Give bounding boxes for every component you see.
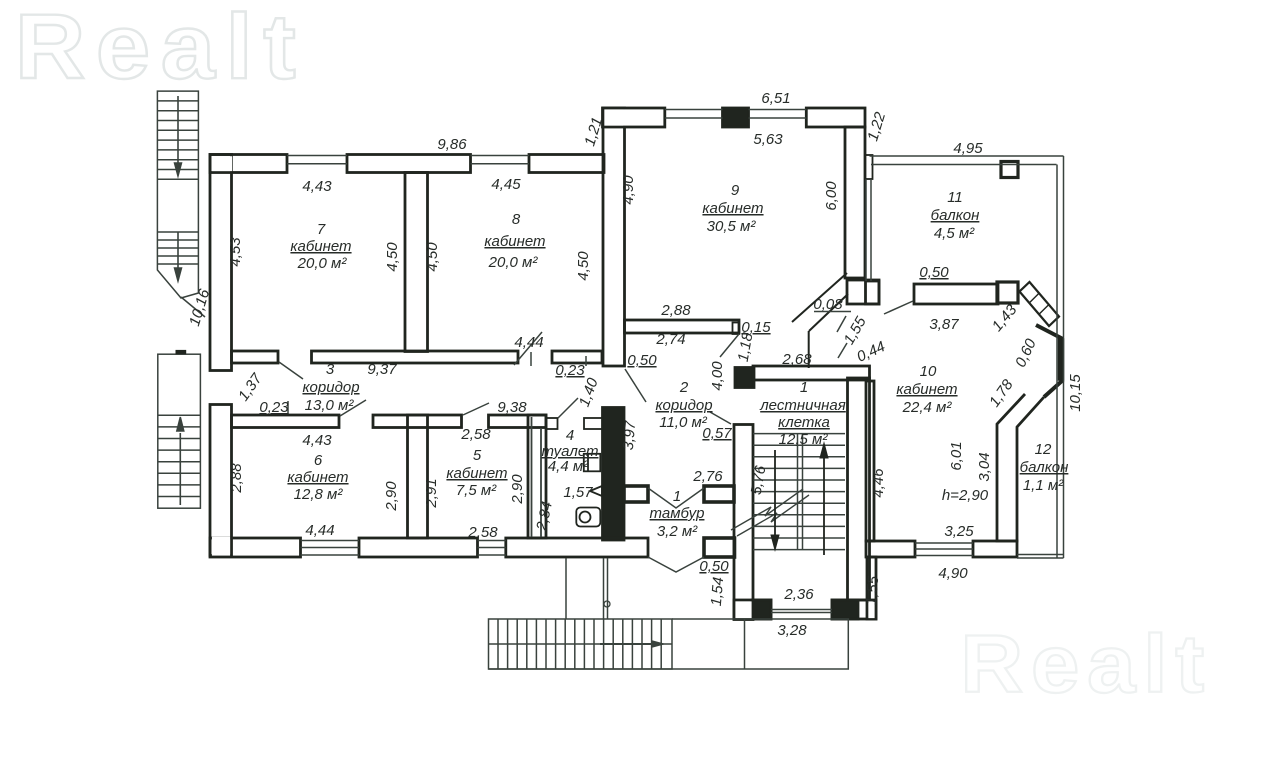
svg-text:12,8 м²: 12,8 м²	[294, 486, 344, 503]
svg-text:7,5 м²: 7,5 м²	[456, 482, 497, 499]
svg-text:тамбур: тамбур	[650, 505, 705, 522]
svg-text:3,28: 3,28	[777, 622, 807, 639]
svg-text:0,23: 0,23	[259, 399, 289, 416]
svg-text:кабинет: кабинет	[484, 233, 545, 250]
svg-text:0,50: 0,50	[919, 264, 949, 281]
svg-text:4,00: 4,00	[709, 361, 726, 391]
svg-text:9: 9	[731, 182, 740, 199]
svg-text:8: 8	[512, 211, 521, 228]
svg-text:5: 5	[473, 447, 482, 464]
svg-text:4: 4	[566, 427, 574, 444]
svg-text:4,50: 4,50	[384, 242, 401, 272]
svg-text:0,57: 0,57	[702, 425, 732, 442]
svg-text:0,50: 0,50	[699, 558, 729, 575]
svg-text:3,25: 3,25	[944, 523, 974, 540]
svg-text:3,04: 3,04	[976, 452, 993, 481]
svg-text:балкон: балкон	[1020, 459, 1069, 476]
svg-text:2,58: 2,58	[460, 426, 491, 443]
svg-text:4,90: 4,90	[938, 565, 968, 582]
svg-text:4,50: 4,50	[424, 242, 441, 272]
svg-text:6: 6	[314, 452, 323, 469]
svg-text:Realt: Realt	[15, 0, 307, 98]
svg-text:7: 7	[317, 221, 326, 238]
svg-text:коридор: коридор	[302, 379, 359, 396]
svg-text:9,38: 9,38	[497, 399, 527, 416]
svg-text:2,90: 2,90	[383, 481, 400, 512]
svg-text:12: 12	[1035, 441, 1052, 458]
svg-text:10,15: 10,15	[1067, 374, 1084, 412]
svg-text:кабинет: кабинет	[446, 465, 507, 482]
svg-text:коридор: коридор	[655, 397, 712, 414]
svg-text:2,74: 2,74	[655, 331, 685, 348]
svg-text:4,43: 4,43	[302, 432, 332, 449]
svg-text:9,86: 9,86	[437, 136, 467, 153]
svg-text:13,0 м²: 13,0 м²	[305, 397, 355, 414]
svg-text:кабинет: кабинет	[702, 200, 763, 217]
svg-text:5,63: 5,63	[753, 131, 783, 148]
svg-text:кабинет: кабинет	[287, 469, 348, 486]
svg-text:4,44: 4,44	[305, 522, 334, 539]
svg-text:30,5 м²: 30,5 м²	[707, 218, 757, 235]
svg-text:4,50: 4,50	[575, 251, 592, 281]
svg-text:6,00: 6,00	[823, 181, 840, 211]
svg-text:4,46: 4,46	[870, 468, 887, 498]
svg-text:балкон: балкон	[931, 207, 980, 224]
svg-text:6,01: 6,01	[948, 441, 965, 470]
svg-text:3: 3	[326, 361, 335, 378]
svg-text:1: 1	[800, 379, 808, 396]
svg-text:1: 1	[673, 488, 681, 505]
svg-text:12,5 м²: 12,5 м²	[779, 431, 829, 448]
svg-text:лестничная: лестничная	[759, 397, 846, 414]
svg-text:11,0 м²: 11,0 м²	[659, 414, 708, 431]
svg-text:4,5 м²: 4,5 м²	[934, 225, 975, 242]
svg-text:1,1 м²: 1,1 м²	[1023, 477, 1064, 494]
svg-text:1,54: 1,54	[708, 576, 727, 607]
svg-text:1,55: 1,55	[863, 575, 883, 606]
svg-text:6,51: 6,51	[761, 90, 790, 107]
svg-text:4,95: 4,95	[953, 140, 983, 157]
svg-text:20,0 м²: 20,0 м²	[297, 255, 348, 272]
svg-text:20,0 м²: 20,0 м²	[488, 254, 539, 271]
svg-text:кабинет: кабинет	[896, 381, 957, 398]
svg-text:2,88: 2,88	[228, 463, 245, 494]
svg-text:4,90: 4,90	[620, 175, 637, 205]
svg-text:2,91: 2,91	[423, 478, 440, 508]
svg-text:22,4 м²: 22,4 м²	[902, 399, 953, 416]
svg-text:3,2 м²: 3,2 м²	[657, 523, 698, 540]
svg-text:0,50: 0,50	[627, 352, 657, 369]
svg-text:клетка: клетка	[778, 414, 830, 431]
svg-text:4,45: 4,45	[491, 176, 521, 193]
svg-text:2,76: 2,76	[692, 468, 723, 485]
svg-text:кабинет: кабинет	[290, 238, 351, 255]
svg-text:3,87: 3,87	[929, 316, 959, 333]
svg-text:4,43: 4,43	[302, 178, 332, 195]
svg-text:4,53: 4,53	[227, 237, 244, 267]
svg-text:Realt: Realt	[960, 618, 1214, 709]
svg-text:h=2,90: h=2,90	[942, 487, 989, 504]
svg-text:1,57: 1,57	[563, 484, 593, 501]
svg-text:2,68: 2,68	[781, 351, 812, 368]
svg-text:2,88: 2,88	[660, 302, 691, 319]
svg-text:2,90: 2,90	[509, 474, 526, 505]
svg-text:2: 2	[679, 379, 689, 396]
svg-text:9,37: 9,37	[367, 361, 397, 378]
svg-text:10: 10	[920, 363, 937, 380]
svg-text:0,08: 0,08	[813, 296, 843, 313]
svg-text:2,58: 2,58	[467, 524, 498, 541]
svg-text:0,23: 0,23	[555, 362, 585, 379]
svg-text:2,36: 2,36	[783, 586, 814, 603]
svg-text:3,97: 3,97	[620, 420, 640, 451]
svg-text:4,44: 4,44	[514, 334, 543, 351]
svg-text:11: 11	[947, 189, 963, 206]
svg-text:4,4 м²: 4,4 м²	[548, 458, 589, 475]
